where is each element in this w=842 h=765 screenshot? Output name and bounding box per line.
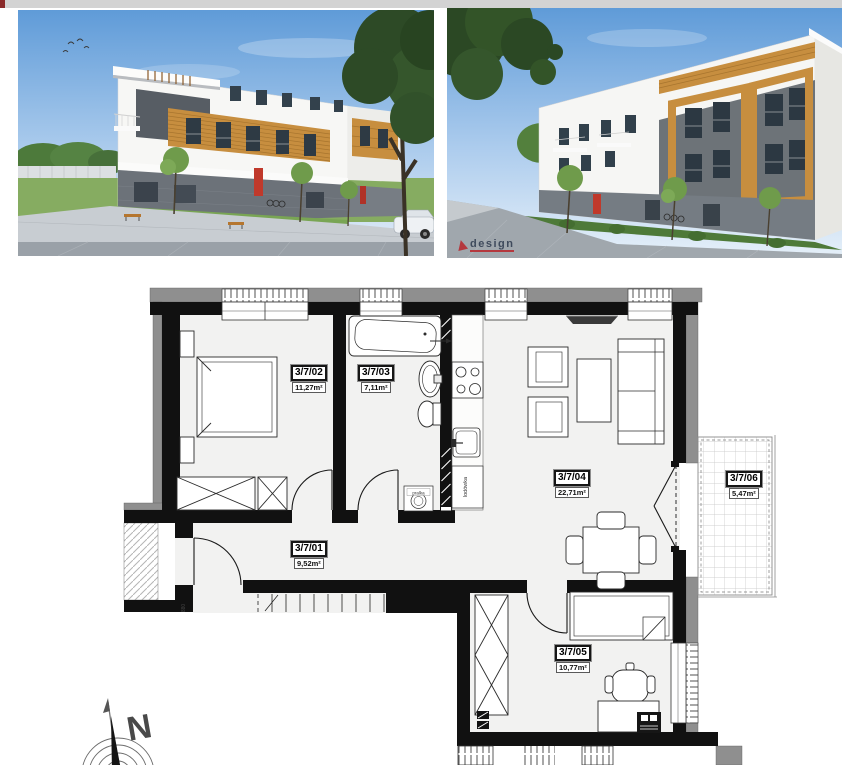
dining-table [583,527,639,573]
room-label-3-7-06: 3/7/06 5,47m² [726,471,762,499]
listing-sheet: design [0,0,842,765]
room-area: 7,11m² [361,382,390,393]
room-label-3-7-04: 3/7/04 22,71m² [554,470,590,498]
room-area: 10,77m² [556,662,590,673]
room-label-3-7-05: 3/7/05 10,77m² [555,645,591,673]
dining-chair [639,536,656,564]
room-area: 5,47m² [729,488,759,499]
hatched-wall-section [124,523,158,600]
room-id: 3/7/06 [726,471,762,487]
washer-label: pralka [412,491,425,496]
sofa [618,339,664,444]
dining-chair [597,512,625,529]
balcony-terrace [698,435,777,597]
tv-console [566,316,618,324]
coffee-table [577,359,611,422]
dining-chair [566,536,583,564]
room-id: 3/7/05 [555,645,591,661]
room-label-3-7-01: 3/7/01 9,52m² [291,541,327,569]
fridge-label: lodówka [463,476,469,497]
room-area: 11,27m² [292,382,326,393]
stove [452,362,483,398]
dining-chair [597,572,625,589]
room-id: 3/7/03 [358,365,394,381]
room-id: 3/7/01 [291,541,327,557]
room-area: 22,71m² [555,487,589,498]
room-label-3-7-02: 3/7/02 11,27m² [291,365,327,393]
room-id: 3/7/02 [291,365,327,381]
desk-chair [612,670,648,702]
computer [637,712,661,733]
floor-plan: lodówka pralka 880 N [0,0,842,765]
room-area: 9,52m² [294,558,324,569]
compass-rose: N [82,698,155,765]
room-label-3-7-03: 3/7/03 7,11m² [358,365,394,393]
north-label: N [124,707,155,749]
stairs-marker: 880 [181,604,187,613]
room-id: 3/7/04 [554,470,590,486]
wardrobe [475,595,508,715]
